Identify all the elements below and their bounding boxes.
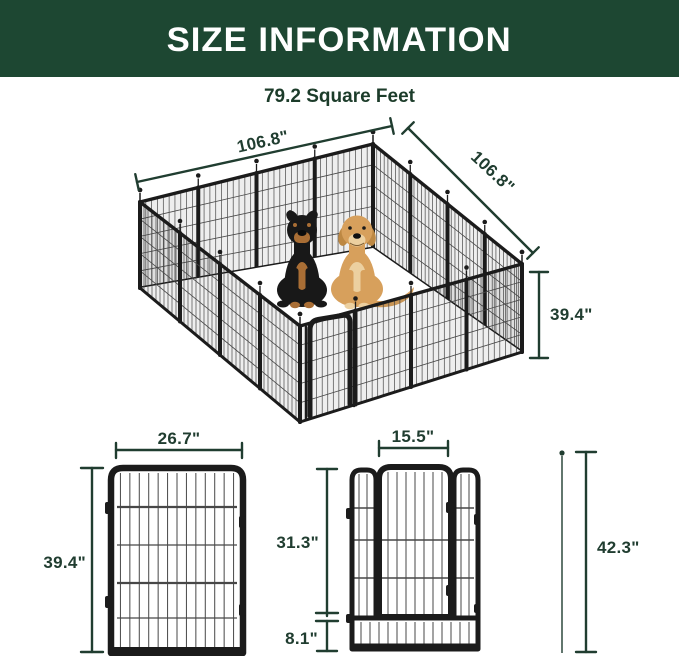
svg-text:8.1": 8.1"	[285, 629, 318, 648]
dim-door-lower-height: 8.1"	[285, 621, 337, 651]
dim-panel-height: 39.4"	[43, 468, 103, 652]
diagram-canvas: 106.8" 106.8" 39.4" 26.7" 39.	[0, 0, 679, 656]
dim-door-upper-height: 31.3"	[276, 469, 338, 621]
size-information-infographic: SIZE INFORMATION 79.2 Square Feet	[0, 0, 679, 656]
svg-text:39.4": 39.4"	[550, 305, 593, 324]
svg-text:26.7": 26.7"	[158, 429, 201, 448]
svg-text:31.3": 31.3"	[276, 533, 319, 552]
single-panel-diagram	[105, 468, 246, 653]
svg-text:42.3": 42.3"	[597, 538, 640, 557]
svg-text:15.5": 15.5"	[392, 427, 435, 446]
door-panel-diagram	[346, 467, 480, 649]
dim-door-width: 15.5"	[379, 427, 448, 456]
ground-stake-icon	[559, 450, 564, 653]
svg-text:106.8": 106.8"	[235, 127, 290, 157]
dim-door-total-height: 42.3"	[576, 452, 640, 652]
dim-pen-height: 39.4"	[530, 272, 593, 358]
dim-panel-width: 26.7"	[116, 429, 242, 458]
svg-text:39.4": 39.4"	[43, 553, 86, 572]
svg-text:106.8": 106.8"	[467, 147, 518, 197]
